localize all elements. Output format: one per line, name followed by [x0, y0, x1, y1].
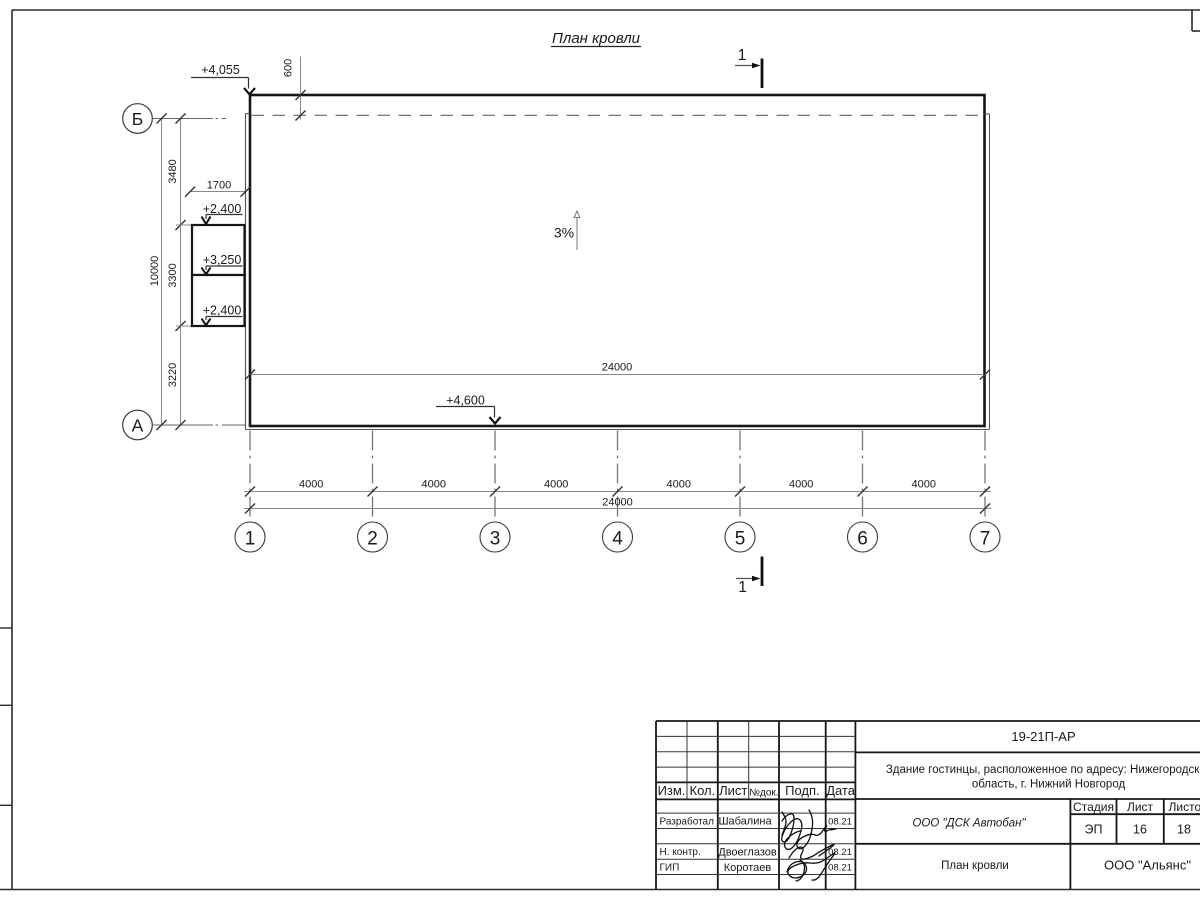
svg-text:Стадия: Стадия	[1073, 800, 1114, 814]
svg-text:08.21: 08.21	[828, 863, 852, 874]
svg-text:10000: 10000	[149, 256, 161, 287]
svg-text:3%: 3%	[554, 225, 574, 241]
svg-text:План кровли: План кровли	[552, 30, 641, 47]
svg-text:+4,600: +4,600	[446, 394, 485, 408]
svg-text:Разработал: Разработал	[660, 816, 715, 828]
svg-text:+4,055: +4,055	[201, 63, 240, 77]
svg-text:4000: 4000	[789, 479, 813, 491]
svg-text:Двоеглазов: Двоеглазов	[718, 847, 777, 859]
svg-text:19-21П-АР: 19-21П-АР	[1011, 729, 1075, 744]
svg-text:3: 3	[490, 528, 501, 549]
svg-text:Н. контр.: Н. контр.	[660, 847, 701, 858]
svg-text:ГИП: ГИП	[660, 863, 680, 874]
svg-text:600: 600	[283, 59, 295, 77]
svg-text:+3,250: +3,250	[203, 253, 242, 267]
svg-text:Б: Б	[132, 109, 143, 129]
svg-text:4000: 4000	[912, 479, 936, 491]
svg-text:Дата: Дата	[826, 783, 856, 798]
svg-text:2: 2	[367, 528, 378, 549]
svg-text:+2,400: +2,400	[203, 304, 242, 318]
svg-text:3480: 3480	[167, 159, 179, 183]
svg-text:7: 7	[980, 528, 991, 549]
svg-text:Листов: Листов	[1169, 800, 1200, 814]
svg-text:Лист: Лист	[719, 783, 747, 798]
svg-text:ООО "ДСК Автобан": ООО "ДСК Автобан"	[912, 818, 1026, 830]
svg-text:ЭП: ЭП	[1085, 823, 1103, 837]
svg-text:План кровли: План кровли	[941, 860, 1009, 872]
svg-text:4000: 4000	[422, 479, 446, 491]
svg-text:1: 1	[245, 528, 256, 549]
svg-text:1700: 1700	[207, 180, 231, 192]
svg-text:Лист: Лист	[1127, 800, 1154, 814]
svg-text:1: 1	[738, 47, 747, 64]
svg-text:Подп.: Подп.	[785, 783, 820, 798]
svg-text:5: 5	[735, 528, 746, 549]
svg-text:Шабалина: Шабалина	[718, 816, 772, 828]
svg-text:24000: 24000	[602, 496, 633, 508]
svg-text:4: 4	[612, 528, 623, 549]
svg-text:18: 18	[1177, 823, 1191, 837]
svg-text:область, г. Нижний Новгород: область, г. Нижний Новгород	[972, 779, 1126, 791]
svg-text:Здание гостинцы, расположенное: Здание гостинцы, расположенное по адресу…	[886, 764, 1200, 776]
svg-text:А: А	[132, 415, 144, 435]
svg-text:08.21: 08.21	[828, 817, 852, 828]
svg-text:6: 6	[857, 528, 868, 549]
svg-text:4000: 4000	[544, 479, 568, 491]
svg-text:08.21: 08.21	[828, 847, 852, 858]
svg-text:ООО "Альянс": ООО "Альянс"	[1104, 858, 1191, 873]
svg-text:3220: 3220	[167, 363, 179, 387]
svg-text:4000: 4000	[299, 479, 323, 491]
svg-text:1: 1	[738, 579, 747, 596]
svg-text:24000: 24000	[602, 362, 633, 374]
svg-text:4000: 4000	[667, 479, 691, 491]
svg-text:Коротаев: Коротаев	[724, 862, 772, 874]
svg-text:16: 16	[1133, 823, 1147, 837]
svg-text:№док.: №док.	[749, 788, 778, 799]
svg-text:3300: 3300	[167, 263, 179, 287]
svg-text:Изм.: Изм.	[658, 783, 686, 798]
svg-text:Кол.: Кол.	[690, 783, 716, 798]
